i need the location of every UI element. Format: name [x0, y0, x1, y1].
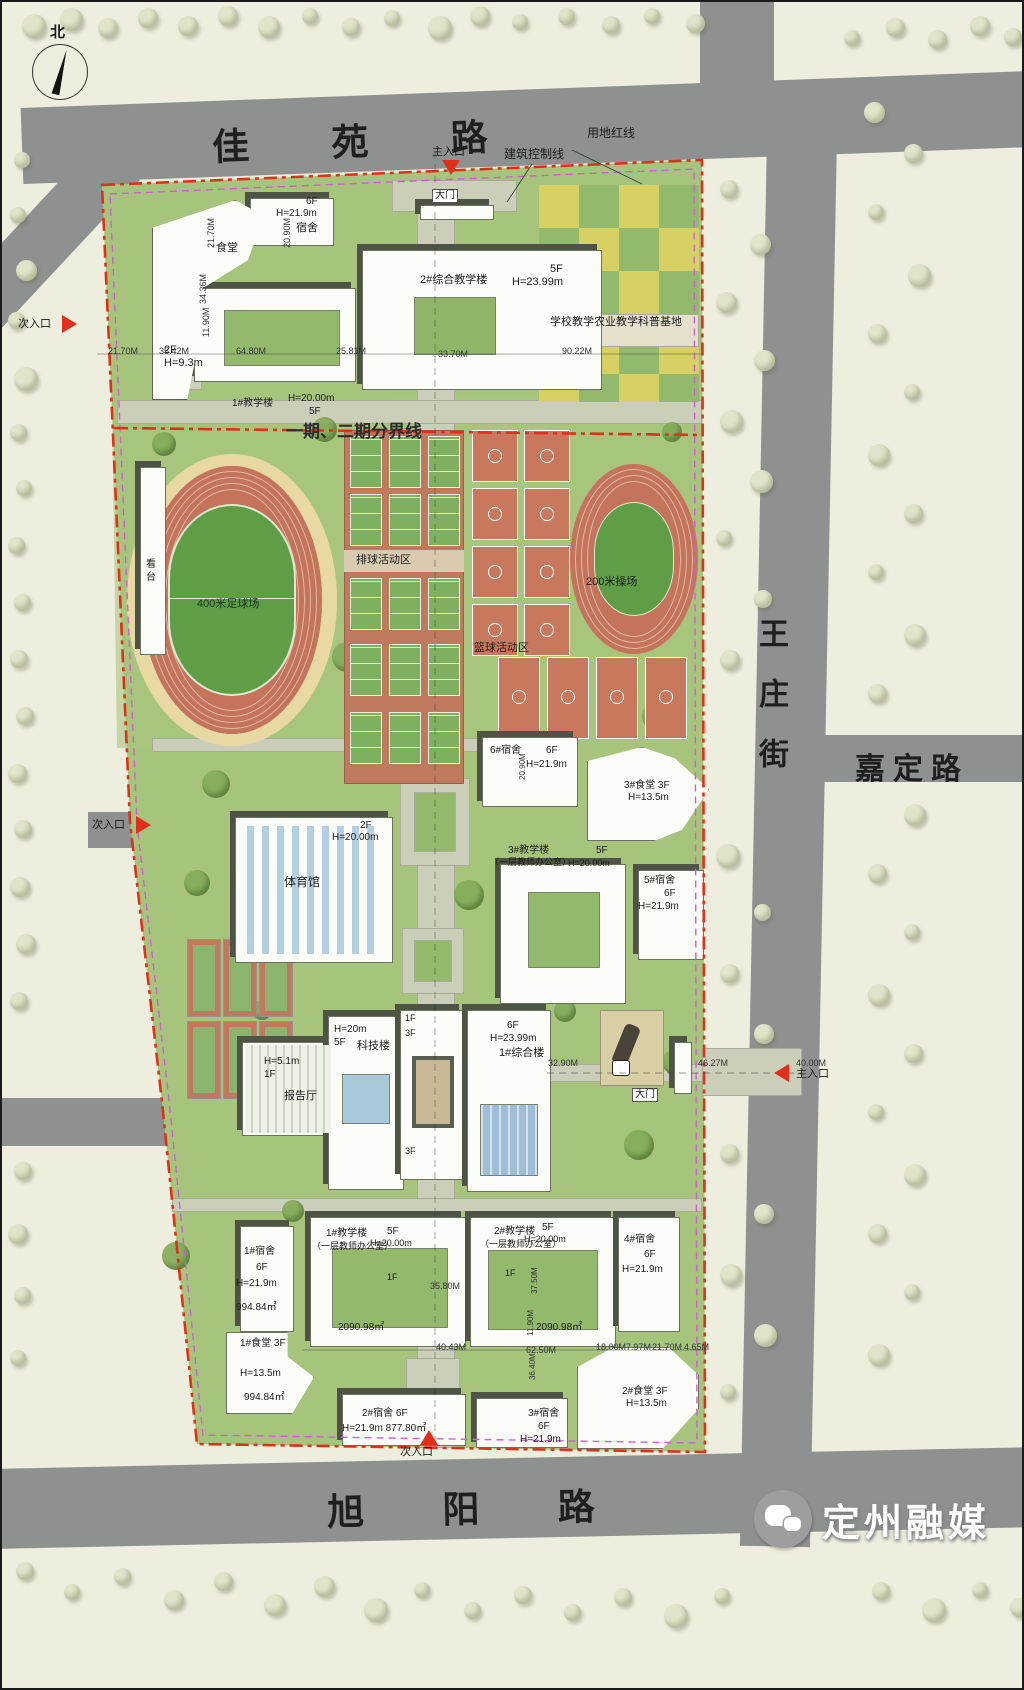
dorm3-label: 3#宿舍: [528, 1408, 559, 1420]
dim-40-43: 40.43M: [436, 1342, 466, 1352]
basketball-court: [524, 430, 570, 482]
tree-icon: [904, 804, 926, 826]
football-field-label: 400米足球场: [197, 598, 259, 611]
volleyball-court: [428, 578, 460, 630]
court-circle: [540, 449, 554, 463]
dorm3-floors: 6F: [538, 1421, 550, 1433]
basketball-court: [524, 546, 570, 598]
teach1-top-courtyard: [224, 310, 340, 366]
dim-46-27: 46.27M: [698, 1058, 728, 1068]
tree-icon: [754, 590, 772, 608]
court-circle: [540, 565, 554, 579]
gym-roof-stripe: [337, 826, 344, 954]
tree-icon: [886, 18, 905, 37]
tree-icon: [868, 564, 884, 580]
main-entrance-top-arrow: [442, 160, 460, 175]
campus-tree-icon: [454, 880, 484, 910]
dorm1-label: 1#宿舍: [244, 1246, 275, 1258]
tree-icon: [10, 650, 28, 668]
tree-icon: [868, 684, 887, 703]
teach1-top-label: 1#教学楼: [232, 398, 273, 410]
tree-icon: [64, 1584, 80, 1600]
scitech-atrium: [342, 1074, 390, 1124]
tennis-court: [188, 1022, 220, 1098]
canteen1b-label: 1#食堂 3F: [240, 1338, 286, 1350]
dim-40-00: 40.00M: [796, 1058, 826, 1068]
tree-icon: [342, 18, 360, 36]
tree-icon: [14, 367, 38, 391]
tree-icon: [10, 1350, 26, 1366]
tree-icon: [1004, 28, 1022, 46]
dorm-top-label: 宿舍: [296, 222, 318, 235]
comp-teach2-height: H=23.99m: [512, 276, 563, 289]
basketball-court: [547, 657, 589, 739]
tree-icon: [868, 204, 884, 220]
campus-tree-icon: [662, 422, 682, 442]
dim-64-80: 64.80M: [236, 346, 266, 356]
tree-icon: [512, 14, 528, 30]
tree-icon: [564, 1604, 581, 1621]
volleyball-court: [389, 578, 421, 630]
gym-roof-stripe: [292, 826, 299, 954]
teach1b-floors: 5F: [387, 1226, 399, 1238]
tree-icon: [720, 650, 740, 670]
basketball-court: [472, 546, 518, 598]
tree-icon: [716, 292, 737, 313]
volleyball-court: [350, 436, 382, 488]
tree-icon: [164, 1590, 184, 1610]
dim-37-50-v: 37.50M: [530, 1267, 539, 1294]
tree-icon: [904, 504, 923, 523]
dorm1-area: 994.84㎡: [236, 1302, 277, 1314]
court-circle: [540, 507, 554, 521]
volleyball-court: [389, 712, 421, 764]
dorm6-label: 6#宿舍: [490, 745, 521, 757]
volleyball-court: [389, 494, 421, 546]
central-tower-1f: 1F: [405, 1013, 416, 1023]
basketball-court: [524, 604, 570, 656]
main-entrance-right-arrow: [774, 1064, 789, 1082]
tree-icon: [714, 1588, 730, 1604]
tree-icon: [972, 1582, 988, 1598]
tree-icon: [868, 1104, 884, 1120]
comp1-label: 1#综合楼: [499, 1047, 544, 1060]
court-circle: [540, 623, 554, 637]
basketball-area-label: 篮球活动区: [474, 642, 529, 655]
tree-icon: [868, 864, 887, 883]
tree-icon: [720, 1384, 736, 1400]
tree-icon: [754, 1024, 774, 1044]
dim-34-36-v: 34.36M: [198, 274, 208, 304]
road-jiayuan-label: 佳 苑 路: [211, 106, 524, 171]
tree-icon: [904, 144, 923, 163]
secondary-entrance-midleft-arrow: [136, 816, 151, 834]
checker-cell: [659, 228, 699, 271]
central-tower-3f-low: 3F: [405, 1146, 416, 1156]
checker-cell: [619, 271, 659, 314]
dim-25-81: 25.81M: [336, 346, 366, 356]
dorm6-height: H=21.9m: [526, 759, 567, 771]
tree-icon: [16, 1562, 34, 1580]
tree-icon: [16, 260, 37, 281]
court-circle: [610, 690, 624, 704]
dim-11-90-vb: 11.90M: [526, 1310, 535, 1336]
campus-tree-icon: [282, 1200, 304, 1222]
path-horizontal-lower: [172, 1198, 702, 1212]
basketball-court: [645, 657, 687, 739]
tree-icon: [754, 1324, 777, 1347]
dim-4-65: 4.65M: [684, 1342, 709, 1352]
volleyball-court: [350, 712, 382, 764]
campus-tree-icon: [184, 870, 210, 896]
tree-icon: [138, 8, 158, 28]
scitech-height: H=20m: [334, 1024, 367, 1036]
volleyball-court: [350, 494, 382, 546]
tree-icon: [754, 904, 771, 921]
road-right-wangzhuang: [740, 84, 838, 1547]
teach1b-label: 1#教学楼: [326, 1228, 367, 1240]
tree-icon: [10, 207, 26, 223]
canteen1b-height: H=13.5m: [240, 1368, 281, 1380]
checker-cell: [619, 374, 659, 402]
tree-icon: [114, 1568, 131, 1585]
dim-18-00: 18.00M: [596, 1342, 626, 1352]
tree-icon: [464, 1602, 481, 1619]
basketball-court: [524, 488, 570, 540]
teach3-floors: 5F: [596, 845, 608, 857]
tree-icon: [904, 1284, 920, 1300]
court-circle: [488, 565, 502, 579]
comp1-courtyard: [480, 1104, 538, 1176]
dim-20-90-v: 20.90M: [282, 218, 292, 248]
tree-icon: [868, 324, 887, 343]
volleyball-court: [350, 644, 382, 696]
checker-cell: [659, 374, 699, 402]
teach2b-1f: 1F: [505, 1268, 516, 1278]
tree-icon: [720, 180, 738, 198]
canteen-top-height: H=9.3m: [164, 357, 203, 370]
campus-tree-icon: [162, 1242, 190, 1270]
tree-icon: [754, 1204, 774, 1224]
tree-icon: [218, 6, 238, 26]
teach1-top-floors: 5F: [309, 406, 321, 418]
gym-roof-stripe: [367, 826, 374, 954]
sculpture-plaque: [612, 1060, 630, 1076]
tree-icon: [928, 30, 947, 49]
court-circle: [659, 690, 673, 704]
volleyball-court: [428, 712, 460, 764]
wechat-bubble-small: [784, 1517, 801, 1531]
teach1b-1f: 1F: [387, 1272, 398, 1282]
tree-icon: [868, 984, 890, 1006]
lecture-floors: 1F: [264, 1069, 276, 1081]
tree-icon: [720, 410, 743, 433]
control-line-label: 建筑控制线: [504, 148, 564, 162]
land-red-line-label: 用地红线: [587, 127, 635, 141]
dorm5-label: 5#宿舍: [644, 875, 675, 887]
court-circle: [488, 449, 502, 463]
tree-icon: [314, 1576, 335, 1597]
tree-icon: [14, 594, 31, 611]
teach1b-height: H=20.00m: [370, 1238, 412, 1248]
secondary-entrance-bottom-label: 次入口: [400, 1446, 433, 1459]
tree-icon: [14, 1162, 32, 1180]
tree-icon: [686, 14, 705, 33]
tree-icon: [264, 1594, 286, 1616]
main-entrance-right-label: 主入口: [796, 1068, 829, 1081]
path-horizontal-upper: [117, 400, 702, 424]
dorm-top-floors: 6F: [306, 196, 318, 208]
road-left-bottom: [2, 1098, 192, 1146]
tree-icon: [720, 964, 739, 983]
tree-icon: [258, 16, 280, 38]
dorm3-height: H=21.9m: [520, 1434, 561, 1446]
basketball-court: [472, 430, 518, 482]
tree-icon: [16, 934, 36, 954]
dim-21-70-v: 21.70M: [206, 218, 216, 248]
dim-21-70-b: 21.70M: [652, 1342, 682, 1352]
tree-icon: [720, 1264, 742, 1286]
tree-icon: [428, 16, 452, 40]
road-wangzhuang-label: 王庄街: [748, 618, 792, 798]
secondary-entrance-topleft-label: 次入口: [18, 318, 51, 331]
tree-icon: [868, 444, 890, 466]
tree-icon: [664, 1604, 688, 1628]
court-circle: [488, 507, 502, 521]
canteen3-height: H=13.5m: [628, 792, 669, 804]
tree-icon: [904, 1044, 923, 1063]
dorm2-label: 2#宿舍 6F: [362, 1408, 408, 1420]
tree-icon: [864, 102, 885, 123]
comp-teach2-label: 2#综合教学楼: [420, 274, 487, 287]
dim-35-42: 35.42M: [159, 346, 189, 356]
checker-cell: [659, 271, 699, 314]
court-circle: [561, 690, 575, 704]
teach2b-floors: 5F: [542, 1222, 554, 1234]
tree-icon: [716, 530, 732, 546]
dim-90-22: 90.22M: [562, 346, 592, 356]
tree-icon: [908, 264, 931, 287]
gym-roof-stripe: [322, 826, 329, 954]
dim-7-97: 7.97M: [626, 1342, 651, 1352]
checker-cell: [579, 185, 619, 228]
canteen2-label: 2#食堂 3F: [622, 1386, 668, 1398]
tree-icon: [384, 10, 400, 26]
secondary-entrance-bottom-arrow: [420, 1430, 438, 1445]
gym-roof-stripe: [352, 826, 359, 954]
lecture-height: H=5.1m: [264, 1056, 299, 1068]
tree-icon: [904, 384, 920, 400]
tree-icon: [970, 16, 990, 36]
tree-icon: [10, 992, 28, 1010]
campus-tree-icon: [202, 770, 230, 798]
watermark: 定州融媒: [754, 1490, 990, 1548]
volleyball-court: [428, 644, 460, 696]
central-tower-court: [412, 1056, 454, 1128]
dorm4-label: 4#宿舍: [624, 1234, 655, 1246]
dim-36-40-v: 36.40M: [528, 1353, 537, 1380]
gate-top-structure: [420, 205, 494, 220]
dim-33-70: 33.70M: [438, 349, 468, 359]
grandstand-label: 看台: [143, 558, 155, 584]
main-entrance-top-label: 主入口: [432, 146, 465, 159]
tree-icon: [922, 1598, 946, 1622]
tree-icon: [10, 877, 30, 897]
tree-icon: [602, 16, 620, 34]
tree-icon: [844, 30, 860, 46]
tree-icon: [868, 1344, 890, 1366]
canteen3-label: 3#食堂 3F: [624, 780, 670, 792]
comp-teach2-courtyard: [414, 297, 496, 355]
agri-base-label: 学校教学农业教学科普基地: [550, 316, 682, 329]
dorm1-floors: 6F: [256, 1262, 268, 1274]
basketball-court: [596, 657, 638, 739]
dorm6-floors: 6F: [546, 745, 558, 757]
tree-icon: [872, 1582, 890, 1600]
track200-field: [594, 502, 674, 616]
secondary-entrance-topleft-arrow: [62, 315, 77, 333]
dorm1-height: H=21.9m: [236, 1278, 277, 1290]
tree-icon: [644, 8, 660, 24]
tree-icon: [750, 470, 773, 493]
dim-11-90-v: 11.90M: [201, 308, 211, 337]
compass-needle: [52, 49, 71, 96]
tree-icon: [904, 624, 926, 646]
tree-icon: [14, 1287, 31, 1304]
checker-cell: [539, 185, 579, 228]
teach2b-area: 2090.98㎡: [536, 1322, 582, 1334]
gym-roof-stripe: [307, 826, 314, 954]
tree-icon: [514, 1586, 532, 1604]
tree-icon: [16, 707, 34, 725]
tree-icon: [720, 1144, 739, 1163]
tree-icon: [754, 350, 775, 371]
checker-cell: [619, 347, 659, 374]
teach1b-area: 2090.98㎡: [338, 1322, 384, 1334]
compass-icon: [32, 44, 88, 100]
canteen1b-area: 994.84㎡: [244, 1392, 285, 1404]
dorm2-height-area: H=21.9m 877.80㎡: [342, 1423, 426, 1435]
dorm5-floors: 6F: [664, 888, 676, 900]
volleyball-area-label: 排球活动区: [356, 554, 411, 567]
teach1-top-height: H=20.00m: [288, 393, 334, 405]
volleyball-court: [389, 644, 421, 696]
tree-icon: [178, 16, 198, 36]
tree-icon: [614, 1588, 632, 1606]
basketball-court: [498, 657, 540, 739]
checker-cell: [619, 185, 659, 228]
dim-35-80: 35.80M: [430, 1281, 460, 1291]
phase-boundary-label: 一期、二期分界线: [286, 422, 422, 442]
tree-icon: [14, 820, 32, 838]
teach2b-height: H=20.00m: [524, 1234, 566, 1244]
volleyball-court: [389, 436, 421, 488]
teach2b-courtyard: [488, 1250, 598, 1330]
checker-cell: [619, 228, 659, 271]
basketball-court: [472, 488, 518, 540]
tree-icon: [98, 18, 118, 38]
comp1-height: H=23.99m: [490, 1033, 536, 1045]
tree-icon: [10, 424, 27, 441]
gym-roof-stripe: [277, 826, 284, 954]
tree-icon: [14, 152, 30, 168]
scitech-label: 科技楼: [357, 1040, 390, 1053]
volleyball-court: [350, 578, 382, 630]
checker-cell: [659, 347, 699, 374]
teach3-height: H=20.00m: [568, 858, 610, 868]
teach3-label: 3#教学楼: [508, 845, 549, 857]
tree-icon: [8, 1224, 28, 1244]
building-dorm-2: [342, 1394, 466, 1446]
watermark-text: 定州融媒: [822, 1492, 990, 1547]
gate-right-structure: [674, 1042, 692, 1094]
tree-icon: [470, 6, 490, 26]
tree-icon: [868, 1224, 887, 1243]
campus-tree-icon: [624, 1130, 654, 1160]
dorm5-height: H=21.9m: [638, 901, 679, 913]
tree-icon: [558, 8, 575, 25]
tennis-court: [188, 940, 220, 1016]
campus-tree-icon: [152, 432, 176, 456]
track200-label: 200米操场: [586, 576, 637, 589]
canteen-top-label: 食堂: [216, 242, 238, 255]
checker-cell: [659, 185, 699, 228]
road-xuyang-label: 旭 阳 路: [327, 1476, 630, 1536]
dorm4-height: H=21.9m: [622, 1264, 663, 1276]
canteen2-height: H=13.5m: [626, 1398, 667, 1410]
volleyball-court: [428, 494, 460, 546]
tree-icon: [1010, 1598, 1024, 1617]
tree-icon: [904, 924, 920, 940]
campus-master-plan: 佳 苑 路 旭 阳 路 王庄街 嘉定路: [0, 0, 1024, 1690]
teach3-note: （一层教师办公室）: [490, 857, 571, 867]
tree-icon: [22, 14, 46, 38]
dorm4-floors: 6F: [644, 1249, 656, 1261]
dim-32-90: 32.90M: [548, 1058, 578, 1068]
court-circle: [488, 623, 502, 637]
gym-roof-stripe: [262, 826, 269, 954]
tree-icon: [16, 480, 32, 496]
secondary-entrance-midleft-label: 次入口: [92, 819, 125, 832]
north-label: 北: [50, 24, 65, 41]
dim-21-70-a: 21.70M: [108, 346, 138, 356]
court-circle: [512, 690, 526, 704]
gym-label: 体育馆: [284, 876, 320, 890]
tree-icon: [8, 537, 25, 554]
gym-roof-stripe: [247, 826, 254, 954]
road-top-jiayuan: 佳 苑 路: [21, 67, 1024, 184]
dim-20-90-vb: 20.90M: [518, 753, 527, 780]
comp1-floors: 6F: [507, 1020, 519, 1032]
teach3-courtyard: [528, 892, 600, 968]
tree-icon: [750, 234, 771, 255]
comp-teach2-floors: 5F: [550, 263, 563, 276]
central-tower-3f: 3F: [405, 1028, 416, 1038]
tree-icon: [8, 764, 27, 783]
tree-icon: [414, 1582, 430, 1598]
plaza-mid-lawn: [414, 940, 452, 982]
plaza-central-lawn: [414, 792, 456, 852]
tree-icon: [904, 1164, 926, 1186]
road-jiading-label: 嘉定路: [855, 744, 969, 788]
gate-top-label: 大门: [432, 189, 458, 203]
tree-icon: [716, 844, 740, 868]
tree-icon: [214, 1572, 233, 1591]
lecture-label: 报告厅: [284, 1090, 317, 1103]
wechat-icon: [754, 1490, 812, 1548]
gym-height: H=20.00m: [332, 832, 378, 844]
gym-floors: 2F: [360, 820, 372, 832]
